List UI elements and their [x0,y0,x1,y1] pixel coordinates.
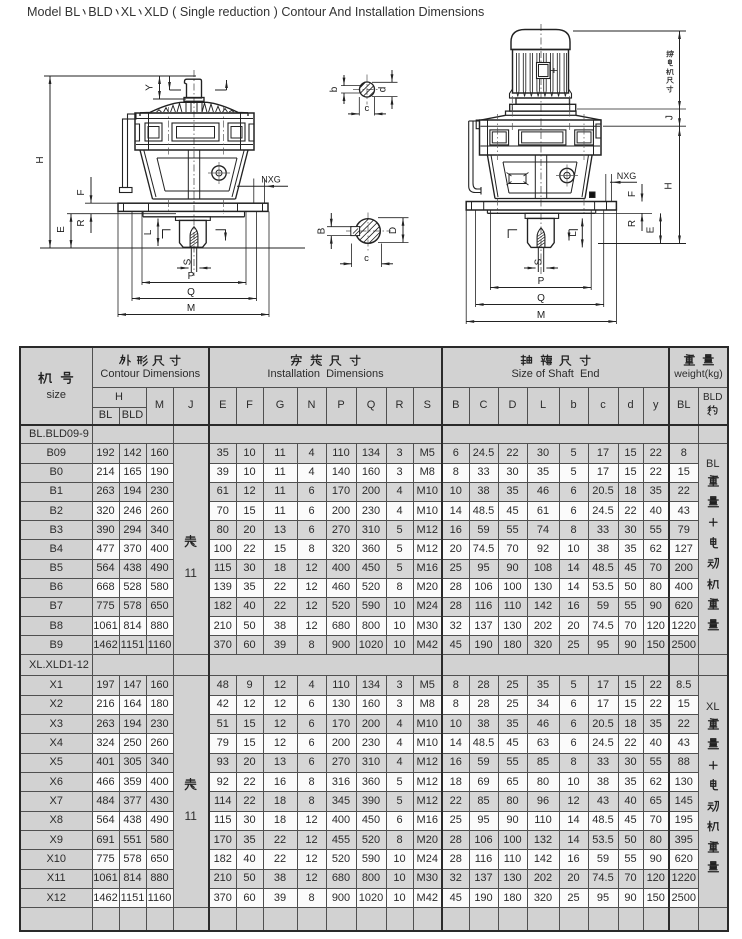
svg-text:H: H [35,156,46,163]
svg-text:R: R [76,219,87,226]
svg-text:NXG: NXG [617,171,637,181]
svg-text:F: F [627,191,638,197]
svg-text:F: F [76,189,87,195]
svg-text:Q: Q [187,287,195,298]
svg-text:M: M [187,303,195,314]
svg-text:J: J [665,115,676,120]
svg-text:d: d [378,87,389,93]
svg-text:E: E [646,226,657,233]
svg-text:P: P [538,276,545,287]
svg-text:c: c [365,103,370,114]
svg-text:B: B [317,227,328,234]
svg-text:R: R [627,220,638,227]
svg-text:M: M [537,310,545,321]
svg-text:P: P [188,271,195,282]
svg-text:H: H [664,182,675,189]
svg-text:Y: Y [145,84,156,91]
svg-text:NXG: NXG [261,174,281,184]
svg-text:E: E [56,226,67,233]
svg-text:S: S [533,258,544,265]
svg-text:Q: Q [537,293,545,304]
svg-text:D: D [388,227,399,234]
svg-text:b: b [329,86,340,92]
svg-text:L: L [143,229,154,235]
svg-text:S: S [182,258,193,265]
svg-text:c: c [364,253,369,264]
